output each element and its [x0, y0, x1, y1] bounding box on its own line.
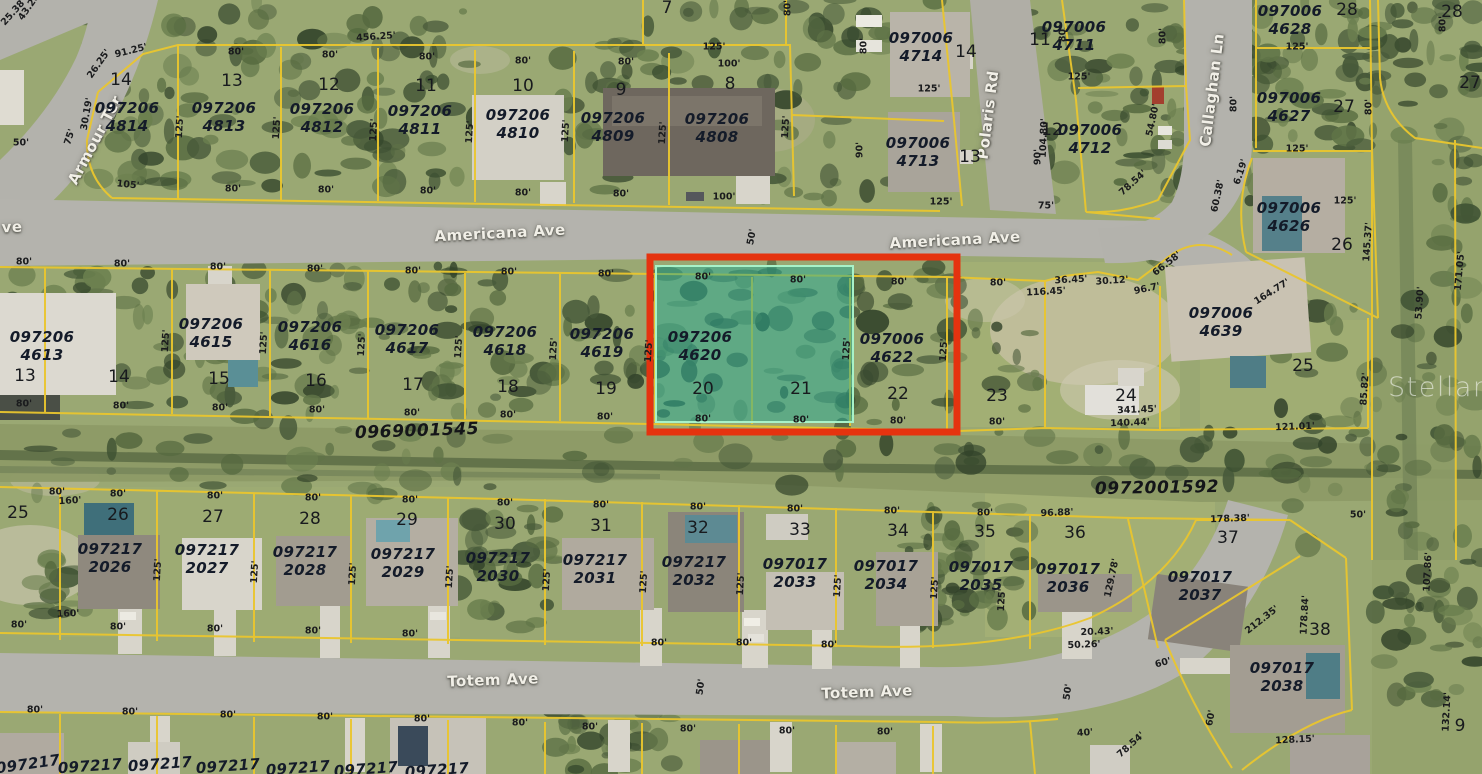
- lot-number: 19: [595, 379, 617, 399]
- dimension-label: 50': [745, 228, 759, 246]
- dimension-label: 60.38': [1209, 179, 1227, 214]
- dimension-label: 80': [404, 408, 420, 419]
- parcel-id-label: 097206 4613: [10, 328, 74, 364]
- dimension-label: 53.90': [1413, 286, 1426, 320]
- dimension-label: 125': [638, 570, 650, 593]
- lot-number: 13: [14, 366, 36, 386]
- dimension-label: 80': [122, 707, 138, 718]
- lot-number: 13: [959, 147, 981, 167]
- dimension-label: 80': [113, 401, 129, 412]
- parcel-id-label: 097017 2038: [1250, 659, 1314, 695]
- dimension-label: 125': [160, 329, 172, 352]
- parcel-id-label: 097206 4619: [570, 325, 634, 361]
- parcel-id-label: 097206 4620: [668, 328, 732, 364]
- dimension-label: 80': [317, 712, 333, 723]
- dimension-label: 80': [420, 186, 436, 197]
- dimension-label: 121.01': [1275, 421, 1315, 433]
- street-name: Americana Ave: [889, 228, 1021, 253]
- dimension-label: 125': [938, 338, 950, 361]
- lot-number: 25: [1292, 356, 1314, 376]
- parcel-id-label: 097217 2031: [563, 551, 627, 587]
- aerial-parcel-map[interactable]: Armour TerveAmericana AveAmericana AvePo…: [0, 0, 1482, 774]
- dimension-label: 178.84': [1298, 595, 1311, 635]
- parcel-id-label: 097206 4808: [685, 110, 749, 146]
- dimension-label: 80': [977, 508, 993, 519]
- dimension-label: 80': [790, 275, 806, 286]
- dimension-label: 160': [56, 608, 79, 620]
- dimension-label: 125': [832, 574, 844, 597]
- lot-number: 14: [955, 42, 977, 62]
- dimension-label: 50': [13, 138, 29, 149]
- parcel-id-label: 097217 2030: [466, 549, 530, 585]
- dimension-label: 125': [657, 121, 669, 144]
- dimension-label: 125': [347, 562, 359, 585]
- dimension-label: 60': [1204, 709, 1218, 727]
- parcel-id-partial-label: 097217: [127, 753, 193, 774]
- dimension-label: 125': [930, 197, 953, 208]
- parcel-id-label: 097006 4639: [1189, 304, 1253, 340]
- parcel-id-label: 097206 4812: [290, 100, 354, 136]
- dimension-label: 80': [414, 714, 430, 725]
- dimension-label: 80': [419, 52, 435, 63]
- parcel-id-partial-label: 097217: [333, 758, 399, 774]
- dimension-label: 125': [1334, 196, 1357, 207]
- dimension-label: 456.25': [356, 30, 396, 44]
- lot-number: 28: [299, 509, 321, 529]
- parcel-id-partial-label: 097217: [57, 755, 123, 774]
- lot-number: 17: [402, 375, 424, 395]
- dimension-label: 80': [318, 185, 334, 196]
- dimension-label: 178.38': [1210, 513, 1250, 525]
- plat-number: 0972001592: [1095, 477, 1220, 499]
- dimension-label: 80': [497, 498, 513, 509]
- parcel-id-label: 097217 2029: [371, 545, 435, 581]
- dimension-label: 96.7': [1133, 281, 1161, 297]
- dimension-label: 125': [464, 120, 476, 143]
- lot-number: 12: [1041, 120, 1063, 140]
- dimension-label: 80': [27, 705, 43, 716]
- dimension-label: 125': [174, 115, 186, 138]
- parcel-id-label: 097017 2033: [763, 555, 827, 591]
- dimension-label: 90': [855, 142, 866, 158]
- lot-number: 11: [415, 76, 437, 96]
- dimension-label: 80': [110, 489, 126, 500]
- dimension-label: 85.82': [1358, 372, 1371, 406]
- lot-number: 36: [1064, 523, 1086, 543]
- dimension-label: 125': [560, 119, 572, 142]
- dimension-label: 80': [597, 412, 613, 423]
- dimension-label: 125': [453, 335, 465, 358]
- street-name: Armour Ter: [64, 92, 126, 187]
- lot-number: 27: [1459, 73, 1481, 93]
- lot-number: 34: [887, 521, 909, 541]
- dimension-label: 50': [1061, 683, 1074, 701]
- dimension-label: 50': [1350, 510, 1366, 521]
- dimension-label: 80': [613, 189, 629, 200]
- parcel-id-label: 097017 2035: [949, 558, 1013, 594]
- dimension-label: 80': [501, 267, 517, 278]
- dimension-label: 80': [990, 278, 1006, 289]
- dimension-label: 80': [307, 264, 323, 275]
- lot-number: 11: [1029, 30, 1051, 50]
- dimension-label: 80': [402, 629, 418, 640]
- dimension-label: 80': [210, 262, 226, 273]
- dimension-label: 80': [783, 0, 794, 16]
- dimension-label: 30.19': [79, 97, 96, 131]
- parcel-id-label: 097017 2037: [1168, 568, 1232, 604]
- lot-number: 35: [974, 522, 996, 542]
- dimension-label: 80': [110, 622, 126, 633]
- dimension-label: 80': [989, 417, 1005, 428]
- dimension-label: 125': [643, 339, 655, 362]
- dimension-label: 80': [1058, 26, 1069, 42]
- dimension-label: 43.28': [16, 0, 44, 23]
- dimension-label: 50': [694, 678, 707, 696]
- dimension-label: 80': [405, 266, 421, 277]
- dimension-label: 80': [651, 638, 667, 649]
- dimension-label: 80': [515, 188, 531, 199]
- dimension-label: 80': [598, 269, 614, 280]
- dimension-label: 60': [1154, 656, 1172, 671]
- dimension-label: 80': [680, 724, 696, 735]
- parcel-id-partial-label: 097217: [265, 757, 331, 774]
- parcel-id-label: 097217 2028: [273, 543, 337, 579]
- dimension-label: 80': [736, 638, 752, 649]
- dimension-label: 125': [918, 84, 941, 95]
- lot-number: 18: [497, 377, 519, 397]
- dimension-label: 80': [207, 624, 223, 635]
- dimension-label: 80': [228, 47, 244, 58]
- lot-number: 7: [662, 0, 673, 18]
- dimension-label: 341.45': [1117, 404, 1157, 416]
- dimension-label: 26.25': [85, 47, 113, 80]
- dimension-label: 80': [212, 403, 228, 414]
- dimension-label: 80': [690, 502, 706, 513]
- dimension-label: 125': [258, 331, 270, 354]
- dimension-label: 80': [695, 414, 711, 425]
- lot-number: 15: [208, 369, 230, 389]
- dimension-label: 125': [929, 576, 941, 599]
- dimension-label: 80': [515, 56, 531, 67]
- street-name: Totem Ave: [447, 669, 539, 690]
- dimension-label: 171.05': [1453, 251, 1467, 291]
- dimension-label: 75': [1038, 201, 1054, 212]
- dimension-label: 80': [322, 50, 338, 61]
- dimension-label: 116.45': [1026, 285, 1066, 298]
- dimension-label: 125': [249, 560, 261, 583]
- dimension-label: 80': [500, 410, 516, 421]
- dimension-label: 125': [735, 572, 747, 595]
- dimension-label: 80': [16, 399, 32, 410]
- dimension-label: 125': [271, 116, 283, 139]
- dimension-label: 140.44': [1110, 417, 1150, 429]
- dimension-label: 80': [16, 257, 32, 268]
- parcel-id-label: 097206 4813: [192, 99, 256, 135]
- dimension-label: 145.37': [1361, 222, 1375, 262]
- dimension-label: 90': [1033, 149, 1044, 165]
- dimension-label: 40': [1077, 727, 1094, 739]
- dimension-label: 80': [11, 620, 27, 631]
- parcel-id-label: 097006 4627: [1257, 89, 1321, 125]
- parcel-id-label: 097206 4618: [473, 323, 537, 359]
- lot-number: 29: [396, 510, 418, 530]
- dimension-label: 80': [1438, 16, 1449, 32]
- parcel-id-label: 097006 4714: [889, 29, 953, 65]
- lot-number: 27: [202, 507, 224, 527]
- dimension-label: 50.26': [1067, 639, 1100, 651]
- dimension-label: 25.38': [0, 0, 29, 28]
- dimension-label: 54.80': [1144, 103, 1162, 138]
- dimension-label: 80': [220, 710, 236, 721]
- lot-number: 16: [305, 371, 327, 391]
- dimension-label: 125': [152, 558, 164, 581]
- dimension-label: 80': [1158, 28, 1169, 44]
- dimension-label: 125': [368, 118, 380, 141]
- dimension-label: 129.78': [1103, 557, 1122, 598]
- lot-number: 12: [318, 75, 340, 95]
- lot-number: 28: [1336, 0, 1358, 20]
- lot-number: 27: [1333, 97, 1355, 117]
- street-name: Polaris Rd: [974, 69, 1003, 160]
- dimension-label: 100': [718, 59, 741, 70]
- lot-number: 10: [512, 76, 534, 96]
- map-labels: Armour TerveAmericana AveAmericana AvePo…: [0, 0, 1482, 774]
- parcel-id-partial-label: 097217: [195, 755, 261, 774]
- dimension-label: 6.19': [1232, 158, 1251, 186]
- dimension-label: 80': [891, 277, 907, 288]
- dimension-label: 125': [780, 115, 792, 138]
- dimension-label: 125': [356, 333, 368, 356]
- dimension-label: 96.88': [1040, 507, 1073, 519]
- dimension-label: 80': [884, 506, 900, 517]
- watermark: StellarMLS: [1388, 372, 1482, 403]
- parcel-id-label: 097217 2032: [662, 553, 726, 589]
- dimension-label: 125': [1068, 72, 1091, 83]
- street-name: ve: [1, 218, 22, 237]
- lot-number: 8: [725, 74, 736, 94]
- dimension-label: 164.77': [1252, 277, 1291, 307]
- dimension-label: 80': [793, 415, 809, 426]
- lot-number: 9: [1455, 716, 1466, 736]
- lot-number: 26: [107, 505, 129, 525]
- parcel-id-label: 097217 2027: [175, 541, 239, 577]
- parcel-id-partial-label: 097217: [0, 751, 61, 774]
- lot-number: 14: [110, 70, 132, 90]
- parcel-id-label: 097006 4628: [1258, 2, 1322, 38]
- dimension-label: 104.80': [1038, 118, 1050, 158]
- lot-number: 13: [221, 71, 243, 91]
- dimension-label: 80': [593, 500, 609, 511]
- parcel-id-label: 097017 2036: [1036, 560, 1100, 596]
- dimension-label: 125': [996, 588, 1008, 611]
- dimension-label: 125': [541, 568, 553, 591]
- lot-number: 26: [1331, 235, 1353, 255]
- dimension-label: 125': [548, 337, 560, 360]
- dimension-label: 80': [512, 718, 528, 729]
- dimension-label: 80': [402, 495, 418, 506]
- lot-number: 32: [687, 518, 709, 538]
- dimension-label: 66.58': [1151, 250, 1184, 279]
- parcel-id-label: 097206 4809: [581, 109, 645, 145]
- dimension-label: 80': [695, 272, 711, 283]
- parcel-id-label: 097006 4713: [886, 134, 950, 170]
- lot-number: 31: [590, 516, 612, 536]
- lot-number: 20: [692, 379, 714, 399]
- dimension-label: 125': [1286, 144, 1309, 155]
- lot-number: 21: [790, 379, 812, 399]
- parcel-id-label: 097206 4814: [95, 99, 159, 135]
- parcel-id-label: 097206 4810: [486, 106, 550, 142]
- dimension-label: 91.25': [114, 42, 149, 61]
- dimension-label: 80': [618, 57, 634, 68]
- parcel-id-partial-label: 097217: [404, 759, 470, 774]
- dimension-label: 132.14': [1440, 692, 1453, 732]
- dimension-label: 80': [582, 722, 598, 733]
- dimension-label: 212.35': [1243, 603, 1281, 636]
- dimension-label: 105': [116, 178, 140, 191]
- dimension-label: 107.86': [1421, 552, 1434, 592]
- lot-number: 33: [789, 520, 811, 540]
- dimension-label: 75': [62, 128, 77, 147]
- dimension-label: 20.43': [1080, 626, 1113, 638]
- dimension-label: 80': [305, 493, 321, 504]
- dimension-label: 80': [114, 259, 130, 270]
- dimension-label: 78.54': [1115, 730, 1147, 760]
- lot-number: 23: [986, 386, 1008, 406]
- parcel-id-label: 097206 4617: [375, 321, 439, 357]
- street-name: Americana Ave: [434, 221, 566, 246]
- dimension-label: 100': [713, 192, 736, 203]
- parcel-id-label: 097206 4615: [179, 315, 243, 351]
- parcel-id-label: 097006 4712: [1058, 121, 1122, 157]
- parcel-id-label: 097006 4626: [1257, 199, 1321, 235]
- dimension-label: 80': [821, 640, 837, 651]
- dimension-label: 30.12': [1095, 274, 1129, 287]
- dimension-label: 80': [49, 487, 65, 498]
- dimension-label: 160': [58, 495, 81, 507]
- dimension-label: 80': [787, 504, 803, 515]
- plat-number: 0969001545: [355, 419, 480, 443]
- lot-number: 38: [1309, 620, 1331, 640]
- dimension-label: 80': [305, 626, 321, 637]
- dimension-label: 80': [779, 726, 795, 737]
- lot-number: 30: [494, 514, 516, 534]
- parcel-id-label: 097206 4616: [278, 318, 342, 354]
- dimension-label: 80': [1229, 96, 1240, 112]
- dimension-label: 80': [859, 38, 870, 54]
- dimension-label: 80': [225, 184, 241, 195]
- dimension-label: 80': [877, 727, 893, 738]
- dimension-label: 36.45': [1054, 274, 1087, 287]
- parcel-id-label: 097217 2026: [78, 540, 142, 576]
- parcel-id-label: 097006 4711: [1042, 18, 1106, 54]
- dimension-label: 125': [1286, 42, 1309, 53]
- street-name: Callaghan Ln: [1196, 32, 1228, 147]
- parcel-id-label: 097206 4811: [388, 102, 452, 138]
- dimension-label: 80': [309, 405, 325, 416]
- dimension-label: 128.15': [1275, 733, 1315, 746]
- dimension-label: 125': [703, 42, 726, 53]
- dimension-label: 80': [207, 491, 223, 502]
- parcel-id-label: 097006 4622: [860, 330, 924, 366]
- dimension-label: 125': [841, 337, 853, 360]
- street-name: Totem Ave: [821, 681, 913, 702]
- lot-number: 25: [7, 503, 29, 523]
- parcel-id-label: 097017 2034: [854, 557, 918, 593]
- lot-number: 37: [1217, 528, 1239, 548]
- lot-number: 24: [1115, 386, 1137, 406]
- dimension-label: 80': [1364, 99, 1375, 115]
- lot-number: 28: [1441, 2, 1463, 22]
- lot-number: 22: [887, 384, 909, 404]
- dimension-label: 78.54': [1117, 168, 1149, 198]
- lot-number: 9: [616, 80, 627, 100]
- dimension-label: 125': [444, 565, 456, 588]
- dimension-label: 80': [890, 416, 906, 427]
- lot-number: 14: [108, 367, 130, 387]
